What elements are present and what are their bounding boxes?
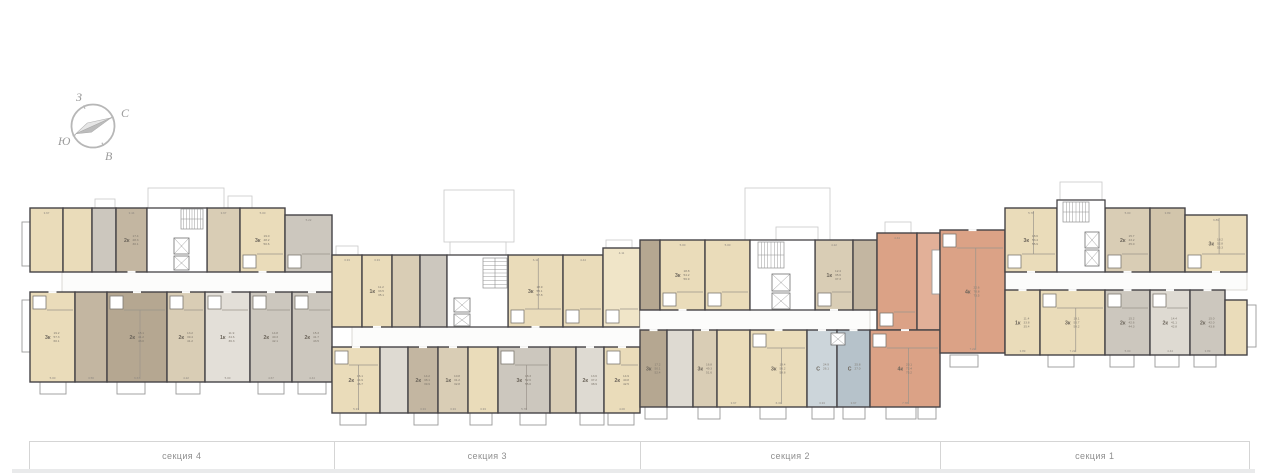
apartment-unit[interactable]: 3.331к11.233.535.1 <box>362 255 392 328</box>
section-label-1: секция 1 <box>940 442 1250 469</box>
flat-type-label: 4к <box>898 367 904 373</box>
flat-area-value: 42.5 <box>623 382 629 386</box>
flat-area-value: 55.3 <box>1217 246 1223 250</box>
apartment-unit[interactable]: 3.67 <box>207 208 240 272</box>
svg-text:5.00: 5.00 <box>1125 349 1131 353</box>
flat-area-value: 36.3 <box>229 339 235 343</box>
balcony <box>932 250 940 294</box>
apartment-unit[interactable]: 5.00 <box>705 240 750 310</box>
apartment-unit[interactable]: 5.783к18.352.655.0 <box>498 346 550 413</box>
svg-text:5.33: 5.33 <box>353 407 359 411</box>
flat-type-label: 2к <box>1120 238 1126 244</box>
svg-text:4.44: 4.44 <box>1167 349 1173 353</box>
flat-type-label: 3к <box>1209 242 1215 248</box>
entrance-vestibule <box>444 190 514 242</box>
svg-text:3.56: 3.56 <box>88 376 94 380</box>
apartment-unit[interactable] <box>63 208 92 272</box>
entrance-vestibule <box>1060 182 1102 200</box>
apartment-unit[interactable] <box>853 240 877 310</box>
entrance-vestibule <box>885 222 911 233</box>
apartment-unit[interactable] <box>640 240 660 310</box>
svg-text:4.00: 4.00 <box>619 407 625 411</box>
flat-area-value: 43.8 <box>1209 325 1215 329</box>
apartment-unit[interactable] <box>420 255 447 327</box>
apartment-unit[interactable]: 3.67 <box>30 208 63 272</box>
apartment-unit[interactable]: 3.331к10.831.232.8 <box>438 346 468 413</box>
apartment-unit[interactable] <box>1225 300 1247 355</box>
flat-area-value: 55.0 <box>525 382 531 386</box>
apartment-unit[interactable]: 5.783к18.653.455.9 <box>1005 208 1057 273</box>
building-секция-2: 5.003к18.854.256.95.004.221к12.435.637.3… <box>640 188 940 419</box>
apartment-unit[interactable]: 5.003к18.854.256.9 <box>660 240 705 311</box>
apartment-unit[interactable] <box>667 330 693 407</box>
svg-text:3.33: 3.33 <box>450 407 456 411</box>
apartment-unit[interactable]: 4.442к15.341.743.5 <box>292 291 332 382</box>
balcony <box>1247 305 1256 347</box>
balcony <box>298 382 326 394</box>
balcony <box>1048 355 1074 367</box>
apartment-unit[interactable] <box>92 208 116 272</box>
balcony <box>760 407 786 419</box>
balcony <box>843 407 865 419</box>
balcony <box>698 407 720 419</box>
corridor <box>640 310 870 330</box>
apartment-unit[interactable]: 5.332к16.144.946.7 <box>332 346 380 413</box>
balcony <box>1155 355 1179 367</box>
svg-text:6.89: 6.89 <box>1213 218 1219 222</box>
flat-type-label: 3к <box>675 273 681 279</box>
stair-core <box>750 240 815 310</box>
svg-text:5.00: 5.00 <box>50 376 56 380</box>
svg-text:3.67: 3.67 <box>731 401 737 405</box>
flat-type-label: 3к <box>517 378 523 384</box>
flat-area-value: 45.0 <box>1129 242 1135 246</box>
apartment-unit[interactable]: 5.002к15.743.245.0 <box>1105 208 1150 273</box>
flat-type-label: 3к <box>45 335 51 341</box>
apartment-unit[interactable]: 7.223к19.155.758.2 <box>1040 289 1105 355</box>
flat-type-label: 2к <box>349 378 355 384</box>
balcony <box>812 407 834 419</box>
stair-core <box>1057 200 1105 272</box>
corridor <box>1005 272 1247 290</box>
compass-letter: С <box>121 106 130 120</box>
entrance-vestibule <box>776 227 818 240</box>
flat-area-value: 58.8 <box>780 371 786 375</box>
flat-area-value: 55.9 <box>1032 242 1038 246</box>
flat-type-label: 4к <box>965 290 971 296</box>
flat-area-value: 60.1 <box>54 339 60 343</box>
svg-text:3.33: 3.33 <box>819 401 825 405</box>
svg-text:3.67: 3.67 <box>44 211 50 215</box>
flat-type-label: 1к <box>1015 321 1021 327</box>
apartment-unit[interactable]: 5.22 <box>285 215 332 272</box>
balcony <box>580 413 604 425</box>
apartment-unit[interactable]: 3.332к14.238.139.9 <box>408 346 438 413</box>
flat-area-value: 41.2 <box>187 339 193 343</box>
apartment-unit[interactable]: 7.784к23.172.475.2 <box>870 329 940 407</box>
stair-core <box>447 255 508 327</box>
building-секция-3: 3.333.331к11.233.535.16.113к18.955.157.8… <box>332 190 640 425</box>
balcony <box>1194 355 1216 367</box>
corridor <box>62 272 332 292</box>
flat-type-label: 2к <box>1120 321 1126 327</box>
entrance-vestibule <box>336 246 358 255</box>
flat-type-label: 3к <box>771 367 777 373</box>
flat-type-label: 2к <box>416 378 422 384</box>
apartment-unit[interactable]: 4.11 <box>603 248 640 327</box>
apartment-unit[interactable]: 4.442к14.441.142.8 <box>1150 289 1190 355</box>
apartment-unit[interactable]: 3.67 <box>717 330 750 407</box>
apartment-unit[interactable]: 3к17.250.152.4 <box>640 329 667 407</box>
flat-type-label: 2к <box>615 378 621 384</box>
svg-text:3.44: 3.44 <box>129 211 135 215</box>
flat-area-value: 58.2 <box>1074 325 1080 329</box>
svg-text:5.78: 5.78 <box>1028 211 1034 215</box>
flat-type-label: С <box>848 367 852 373</box>
flat-area-value: 43.0 <box>138 339 144 343</box>
svg-text:5.00: 5.00 <box>680 243 686 247</box>
apartment-unit[interactable] <box>392 255 420 327</box>
svg-text:7.22: 7.22 <box>970 347 976 351</box>
apartment-unit[interactable]: 4.222к13.239.441.2 <box>167 291 205 382</box>
compass-rose: ЗСЮВ <box>57 90 130 163</box>
page-bottom-band <box>12 469 1255 473</box>
flat-type-label: 2к <box>130 335 136 341</box>
compass-letter: В <box>105 149 113 163</box>
svg-text:4.67: 4.67 <box>268 376 274 380</box>
svg-text:3.89: 3.89 <box>1205 349 1211 353</box>
apartment-unit[interactable]: 5.002к15.242.644.3 <box>1105 289 1150 355</box>
svg-text:5.00: 5.00 <box>725 243 731 247</box>
apartment-unit[interactable]: 4.44 <box>877 233 917 330</box>
svg-text:3.67: 3.67 <box>221 211 227 215</box>
apartment-unit[interactable]: 3.33 <box>332 255 362 327</box>
flat-area-value: 35.1 <box>378 293 384 297</box>
flat-area-value: 42.1 <box>272 339 278 343</box>
flat-area-value: 50.6 <box>264 242 270 246</box>
balcony <box>117 382 145 394</box>
svg-text:6.67: 6.67 <box>134 376 140 380</box>
flat-area-value: 44.3 <box>1129 325 1135 329</box>
svg-text:3.33: 3.33 <box>420 407 426 411</box>
svg-text:5.00: 5.00 <box>225 376 231 380</box>
svg-text:5.00: 5.00 <box>260 211 266 215</box>
flat-area-value: 37.3 <box>835 277 841 281</box>
flat-area-value: 43.5 <box>313 339 319 343</box>
apartment-unit[interactable]: 4.672к14.840.342.1 <box>250 291 292 382</box>
svg-text:3.89: 3.89 <box>1020 349 1026 353</box>
compass-letter: Ю <box>57 134 71 148</box>
floorplan-canvas: ЗСЮВ3.673.442к17.428.330.13.675.003к19.0… <box>0 0 1280 474</box>
section-legend-bar: секция 4 секция 3 секция 2 секция 1 <box>29 441 1250 470</box>
flat-area-value: 32.8 <box>454 382 460 386</box>
flat-type-label: 2к <box>305 335 311 341</box>
svg-text:7.78: 7.78 <box>902 401 908 405</box>
balcony <box>645 407 667 419</box>
balcony <box>470 413 492 425</box>
svg-text:6.33: 6.33 <box>776 401 782 405</box>
compass-letter: З <box>76 90 82 104</box>
svg-text:5.78: 5.78 <box>521 407 527 411</box>
flat-type-label: 1к <box>827 273 833 279</box>
apartment-unit[interactable]: 3.33 <box>468 347 498 413</box>
svg-text:3.33: 3.33 <box>480 407 486 411</box>
apartment-unit[interactable]: 4.44 <box>563 255 603 327</box>
flat-type-label: 2к <box>1163 321 1169 327</box>
building-секция-4: 3.673.442к17.428.330.13.675.003к19.048.2… <box>22 188 332 394</box>
flat-area-value: 26.1 <box>823 367 829 371</box>
svg-text:4.11: 4.11 <box>619 251 625 255</box>
balcony <box>1110 355 1134 367</box>
apartment-unit[interactable]: 6.333к19.456.258.8 <box>750 329 807 407</box>
svg-text:3.89: 3.89 <box>1165 211 1171 215</box>
flat-type-label: 2к <box>583 378 589 384</box>
flat-type-label: 1к <box>220 335 226 341</box>
apartment-unit[interactable]: 2к13.637.238.9 <box>576 346 604 413</box>
building-секция-1: 7.224к22.670.873.55.783к18.653.455.95.00… <box>932 182 1256 367</box>
svg-text:3.33: 3.33 <box>374 258 380 262</box>
svg-text:3.33: 3.33 <box>344 258 350 262</box>
entrance-vestibule <box>450 242 506 255</box>
apartment-unit[interactable]: 3.892к15.042.043.8 <box>1190 289 1225 355</box>
balcony <box>950 355 978 367</box>
corridor <box>352 327 640 347</box>
flat-area-value: 46.7 <box>357 382 363 386</box>
flat-area-value: 52.4 <box>655 371 661 375</box>
section-label-3: секция 3 <box>334 442 641 469</box>
balcony <box>176 382 200 394</box>
flat-area-value: 39.9 <box>424 382 430 386</box>
svg-text:7.22: 7.22 <box>1070 349 1076 353</box>
flat-area-value: 42.8 <box>1171 325 1177 329</box>
balcony <box>608 413 634 425</box>
apartment-unit[interactable]: 3к16.849.351.6 <box>693 329 717 407</box>
flat-area-value: 56.9 <box>684 277 690 281</box>
apartment-unit[interactable]: 3.891к11.433.835.4 <box>1005 289 1040 355</box>
svg-text:5.22: 5.22 <box>306 218 312 222</box>
apartment-unit[interactable]: 5.003к19.048.250.6 <box>240 208 285 273</box>
svg-text:3.67: 3.67 <box>851 401 857 405</box>
flat-type-label: 3к <box>1065 321 1071 327</box>
flat-area-value: 75.2 <box>906 371 912 375</box>
section-label-4: секция 4 <box>30 442 334 469</box>
flat-type-label: 2к <box>124 238 130 244</box>
svg-text:4.44: 4.44 <box>309 376 315 380</box>
apartment-unit[interactable]: 3.442к17.428.330.1 <box>116 208 147 273</box>
apartment-unit[interactable]: 3.89 <box>1150 208 1185 272</box>
flat-area-value: 27.0 <box>855 367 861 371</box>
flat-type-label: 3к <box>1024 238 1030 244</box>
flat-type-label: 3к <box>646 367 652 373</box>
apartment-unit[interactable]: 4.002к14.940.842.5 <box>604 346 640 413</box>
flat-area-value: 35.4 <box>1024 325 1030 329</box>
svg-text:4.44: 4.44 <box>894 236 900 240</box>
svg-text:5.00: 5.00 <box>1125 211 1131 215</box>
flat-type-label: 2к <box>1200 321 1206 327</box>
flat-type-label: 3к <box>255 238 261 244</box>
apartment-unit[interactable]: 7.224к22.670.873.5 <box>940 229 1005 353</box>
entrance-vestibule <box>95 199 115 208</box>
flat-area-value: 73.5 <box>974 294 980 298</box>
apartment-unit[interactable]: 5.001к11.934.636.3 <box>205 291 250 382</box>
flat-type-label: С <box>816 367 820 373</box>
apartment-unit[interactable]: 6.672к15.141.243.0 <box>107 291 167 382</box>
flat-area-value: 51.6 <box>706 371 712 375</box>
balcony <box>22 300 30 352</box>
balcony <box>520 413 546 425</box>
apartment-unit[interactable]: 6.893к18.252.855.3 <box>1185 215 1247 273</box>
balcony <box>22 222 30 266</box>
stair-core <box>147 208 207 272</box>
svg-text:4.44: 4.44 <box>580 258 586 262</box>
apartment-unit[interactable]: 6.113к18.955.157.8 <box>508 255 563 328</box>
flat-area-value: 57.8 <box>537 293 543 297</box>
flat-type-label: 2к <box>179 335 185 341</box>
balcony <box>340 413 366 425</box>
flat-type-label: 1к <box>446 378 452 384</box>
entrance-vestibule <box>228 196 252 208</box>
apartment-unit[interactable] <box>550 347 576 413</box>
balcony <box>886 407 916 419</box>
apartment-unit[interactable]: 5.003к19.257.360.1 <box>30 291 75 382</box>
flat-type-label: 2к <box>264 335 270 341</box>
balcony <box>414 413 438 425</box>
floorplan-screenshot: ЗСЮВ3.673.442к17.428.330.13.675.003к19.0… <box>0 0 1280 474</box>
flat-type-label: 3к <box>698 367 704 373</box>
apartment-unit[interactable]: 4.221к12.435.637.3 <box>815 240 853 311</box>
apartment-unit[interactable]: 3.56 <box>75 292 107 382</box>
apartment-unit[interactable] <box>380 347 408 413</box>
svg-text:4.22: 4.22 <box>831 243 837 247</box>
flat-area-value: 38.9 <box>591 382 597 386</box>
svg-text:6.11: 6.11 <box>533 258 539 262</box>
balcony <box>258 382 284 394</box>
section-label-2: секция 2 <box>640 442 940 469</box>
balcony <box>918 407 936 419</box>
flat-type-label: 3к <box>528 289 534 295</box>
flat-type-label: 1к <box>370 289 376 295</box>
balcony <box>40 382 66 394</box>
flat-area-value: 30.1 <box>133 242 139 246</box>
svg-text:4.22: 4.22 <box>183 376 189 380</box>
